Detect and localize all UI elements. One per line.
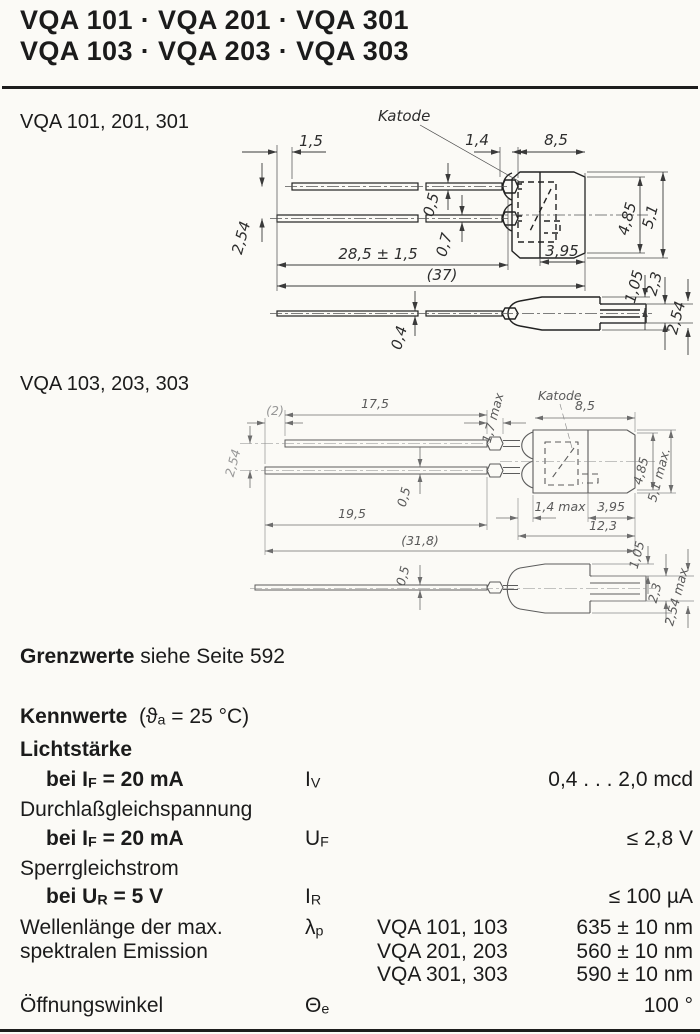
value-iv: 0,4 . . . 2,0 mcd xyxy=(548,768,693,792)
param-wellenlaenge-2: spektralen Emission xyxy=(20,940,208,964)
kennwerte-row: Sperrgleichstrom xyxy=(0,857,700,882)
kennwerte-row: Durchlaßgleichspannung xyxy=(0,798,700,823)
kennwerte-row: Öffnungswinkel Θe 100 ° xyxy=(0,994,700,1019)
led-bottom-view xyxy=(250,564,655,613)
dim-label-crimp: 1,4 xyxy=(465,131,489,149)
symbol-ir: IR xyxy=(305,885,321,909)
dim-label-lead-thickness: 0,5 xyxy=(394,485,414,508)
kennwerte-row: bei UR = 5 V IR ≤ 100 µA xyxy=(0,885,700,910)
value-uf: ≤ 2,8 V xyxy=(627,827,693,851)
param-oeffnungswinkel: Öffnungswinkel xyxy=(20,994,163,1018)
dim-label-tab-width: 2,54 xyxy=(663,299,689,336)
grenzwerte-line: Grenzwerte siehe Seite 592 xyxy=(20,645,285,669)
dim-label-offset: (2) xyxy=(266,403,284,418)
kennwerte-heading: Kennwerte (ϑa = 25 °C) xyxy=(20,705,249,729)
drawing-vqa103-dimensions: (2) 17,5 1,7 max 8,5 2,54 0,5 19,5 1,4 xyxy=(0,390,700,640)
dimension-lines-bottom: 0,5 1,05 2,3 2,54 max. xyxy=(393,539,694,628)
katode-leader-line xyxy=(560,404,572,448)
led-side-view xyxy=(270,172,648,258)
device-group-2: VQA 201, 203 xyxy=(377,940,508,964)
dim-label-body-diameter: 5,1 xyxy=(638,203,662,231)
header-rule xyxy=(2,86,698,89)
drawing-vqa101-dimensions: 1,5 2,54 0,5 0,7 1,4 8,5 28,5 ± 1,5 (37) xyxy=(0,105,700,370)
dimension-lines-side: 1,5 2,54 0,5 0,7 1,4 8,5 28,5 ± 1,5 (37) xyxy=(228,131,668,291)
kennwerte-keyword: Kennwerte xyxy=(20,705,127,728)
page-title-line2: VQA 103 · VQA 203 · VQA 303 xyxy=(20,36,409,67)
dim-label-offset: 1,5 xyxy=(299,132,323,150)
value-ir: ≤ 100 µA xyxy=(609,885,693,909)
footer-rule xyxy=(0,1029,700,1032)
datasheet-page: VQA 101 · VQA 201 · VQA 301 VQA 103 · VQ… xyxy=(0,0,700,1034)
kennwerte-condition: (ϑa = 25 °C) xyxy=(127,705,249,728)
dim-label-lead1-length: 17,5 xyxy=(361,396,389,411)
dim-label-body-length: 8,5 xyxy=(544,131,568,149)
dim-label-lead2-thickness: 0,7 xyxy=(432,230,456,258)
dim-label-crimp-thickness: 1,7 max xyxy=(479,391,507,445)
kennwerte-row: bei IF = 20 mA UF ≤ 2,8 V xyxy=(0,827,700,852)
device-group-1: VQA 101, 103 xyxy=(377,916,508,940)
kennwerte-row: spektralen Emission VQA 201, 203 560 ± 1… xyxy=(0,940,700,965)
param-lichtstaerke: Lichtstärke xyxy=(20,738,132,762)
symbol-lambda-p: λp xyxy=(305,916,323,940)
symbol-uf: UF xyxy=(305,827,329,851)
dim-label-lead-length: 28,5 ± 1,5 xyxy=(338,245,417,263)
dim-label-face-diameter: 4,85 xyxy=(614,200,640,237)
dim-label-bottom-lead-thickness: 0,5 xyxy=(393,564,413,587)
dim-label-bottom-lead-thickness: 0,4 xyxy=(387,324,411,352)
param-condition: bei IF = 20 mA xyxy=(46,827,184,851)
dim-label-nose-a: 1,05 xyxy=(626,539,648,570)
grenzwerte-rest: siehe Seite 592 xyxy=(134,645,285,668)
dim-label-seat-length: 12,3 xyxy=(589,518,617,533)
param-condition: bei UR = 5 V xyxy=(46,885,163,909)
param-durchlass: Durchlaßgleichspannung xyxy=(20,798,252,822)
kennwerte-row: Lichtstärke xyxy=(0,738,700,763)
led-bottom-view xyxy=(270,297,652,330)
dim-label-cap-length: 3,95 xyxy=(597,499,625,514)
value-angle: 100 ° xyxy=(644,994,693,1018)
dim-label-cap-length: 3,95 xyxy=(545,242,578,260)
kennwerte-row: Wellenlänge der max. λp VQA 101, 103 635… xyxy=(0,916,700,941)
dim-label-lead2-length: 19,5 xyxy=(338,506,366,521)
device-group-3: VQA 301, 303 xyxy=(377,963,508,987)
value-wavelength-2: 560 ± 10 nm xyxy=(576,940,693,964)
page-title-line1: VQA 101 · VQA 201 · VQA 301 xyxy=(20,5,409,36)
param-wellenlaenge-1: Wellenlänge der max. xyxy=(20,916,223,940)
dim-label-pitch: 2,54 xyxy=(228,219,254,256)
symbol-theta-e: Θe xyxy=(305,994,329,1018)
dim-label-crimp-length: 1,4 max xyxy=(534,499,586,514)
led-side-view xyxy=(240,430,655,493)
param-condition: bei IF = 20 mA xyxy=(46,768,184,792)
katode-label: Katode xyxy=(538,390,582,403)
value-wavelength-1: 635 ± 10 nm xyxy=(576,916,693,940)
symbol-iv: IV xyxy=(305,768,320,792)
kennwerte-row: VQA 301, 303 590 ± 10 nm xyxy=(0,963,700,988)
dim-label-body-diameter: 5,1 max. xyxy=(644,446,673,503)
grenzwerte-keyword: Grenzwerte xyxy=(20,645,134,668)
dim-label-total-length: (31,8) xyxy=(401,533,439,548)
dim-label-pitch: 2,54 xyxy=(222,447,244,478)
dim-label-total-length: (37) xyxy=(427,266,458,284)
katode-label: Katode xyxy=(378,107,430,125)
param-sperr: Sperrgleichstrom xyxy=(20,857,179,881)
kennwerte-row: bei IF = 20 mA IV 0,4 . . . 2,0 mcd xyxy=(0,768,700,793)
value-wavelength-3: 590 ± 10 nm xyxy=(576,963,693,987)
